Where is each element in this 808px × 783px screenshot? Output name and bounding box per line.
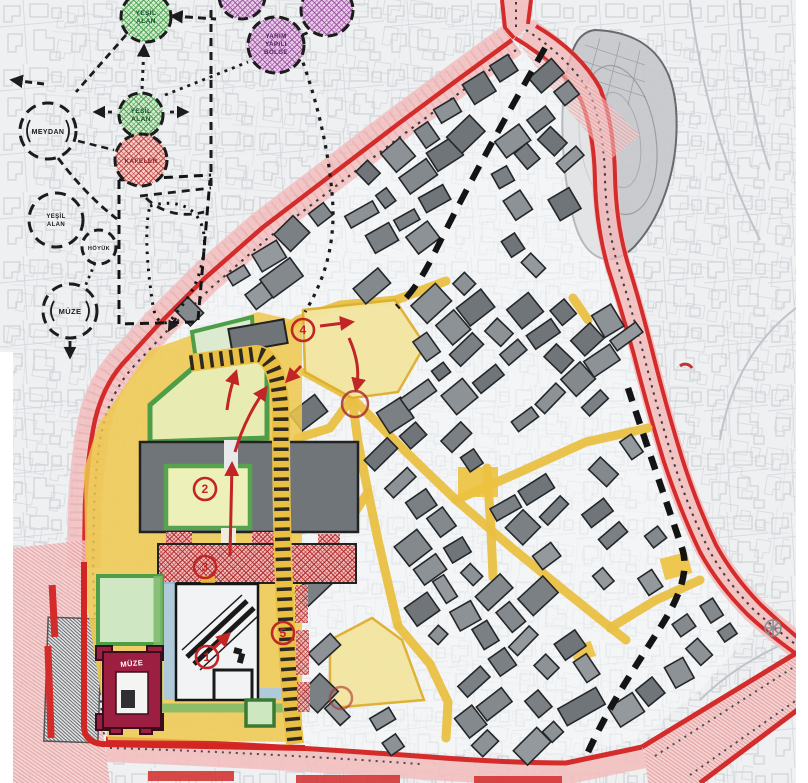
bubble-label: ALAN: [47, 222, 65, 228]
concept-bubble-semi-built-zone: YARIM YAPILI BÖLGE: [248, 17, 304, 73]
bubble-label: ALAN: [136, 18, 156, 25]
bubble-label: YEŞİL: [46, 213, 65, 220]
marker-5-number: 5: [279, 626, 286, 640]
green-block: [98, 576, 162, 644]
concept-bubble-cafes: KAFELER: [115, 134, 167, 186]
promenade-red-strips: [295, 585, 310, 712]
bubble-label: YARIM: [265, 33, 286, 40]
ramp-building: [176, 584, 258, 700]
concept-bubble-green-area-mid: YEŞİL ALAN: [119, 93, 163, 137]
red-hatch-strip: [158, 532, 356, 583]
bubble-label: MEYDAN: [32, 129, 65, 136]
marker-2-number: 2: [201, 482, 208, 496]
street-widening: [458, 467, 498, 497]
bubble-label: YEŞİL: [131, 107, 152, 115]
small-green-square: [246, 700, 274, 726]
bubble-label: ALAN: [131, 116, 151, 123]
roundabout-symbol: [765, 620, 781, 636]
marker-3-number: 3: [201, 560, 208, 574]
block-courtyard: [166, 466, 250, 528]
bubble-label: KAFELER: [125, 158, 158, 165]
bubble-label: BÖLGE: [264, 49, 288, 56]
bubble-label: MÜZE: [59, 307, 82, 316]
left-scan-edge: [0, 352, 13, 783]
marker-4-number: 4: [299, 323, 306, 337]
bubble-label: HÖYÜK: [88, 245, 110, 252]
right-scan-edge: [796, 0, 808, 783]
bubble-label: YAPILI: [265, 41, 287, 48]
scanned-urban-plan: MÜZE 1 2 3: [0, 0, 808, 783]
arrow-axis-up: [230, 464, 232, 556]
museum-building: MÜZE: [96, 646, 163, 734]
plan-svg: MÜZE 1 2 3: [0, 0, 808, 783]
bubble-label: YEŞİL: [136, 9, 157, 17]
marker-1-number: 1: [203, 650, 210, 664]
